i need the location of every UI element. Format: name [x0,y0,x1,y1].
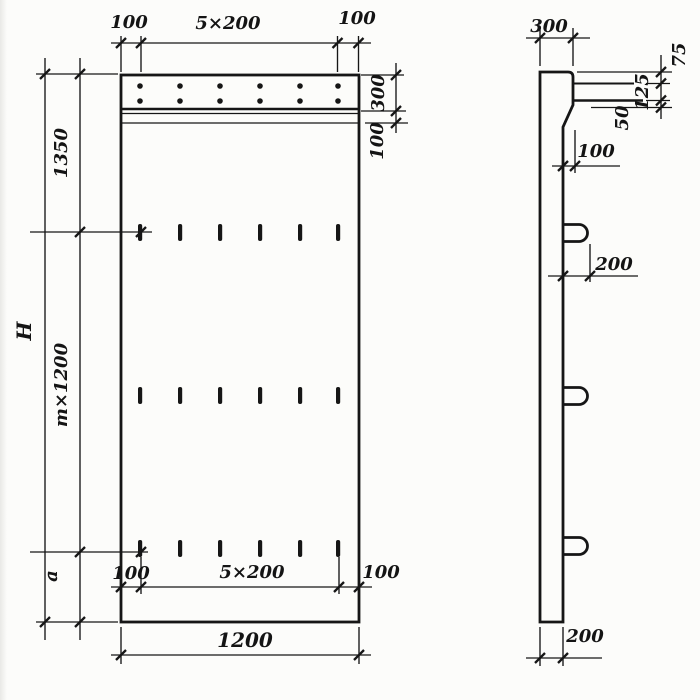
front-overall-width-dimension: 1200 [111,627,371,664]
side-top-dimension: 300 [526,16,590,66]
side-loop-depth-label: 200 [594,254,633,275]
side-top-thickness-label: 300 [530,16,568,37]
front-dim-a-label: a [41,570,62,582]
front-groove-height-label: 100 [367,122,388,160]
front-bottom-inner-dimension: 100 5×200 100 [111,557,400,594]
front-strip-height-label: 300 [368,74,389,112]
front-top-dim-right-label: 100 [338,8,376,29]
front-top-dim-middle-label: 5×200 [195,13,261,34]
panel-outline [121,75,359,622]
side-bottom-dimension: 200 [526,626,604,666]
front-right-dimension: 300 100 [361,63,408,160]
front-left-dimension: 1350 m×1200 a H [12,58,152,640]
front-bottom-dim-right-label: 100 [362,562,400,583]
front-bottom-dim-middle-label: 5×200 [219,562,285,583]
front-view: 100 5×200 100 300 100 [12,8,408,664]
front-dim-1350-label: 1350 [51,127,72,178]
side-profile-outline [540,72,573,622]
side-offset-label: 100 [577,141,615,162]
lifting-loops [563,225,588,555]
side-dim-75-label: 75 [669,42,690,67]
side-right-dimension: 75 125 50 [577,42,690,130]
side-bottom-thickness-label: 200 [565,626,604,647]
front-width-label: 1200 [217,628,273,652]
side-dim-50-label: 50 [612,105,633,131]
front-dim-m1200-label: m×1200 [51,342,72,427]
side-loop-dimension: 200 [548,244,638,282]
front-bottom-dim-left-label: 100 [112,563,150,584]
anchor-slots [138,224,340,557]
front-dim-H-label: H [12,320,36,341]
rebar-dots [137,83,341,104]
panel-drawing: 100 5×200 100 300 100 [0,0,700,700]
side-dim-125-label: 125 [632,73,653,111]
front-top-dim-left-label: 100 [110,12,148,33]
front-top-dimension: 100 5×200 100 [110,8,376,72]
side-view: 300 75 125 50 100 [526,16,690,666]
drawing-sheet: 100 5×200 100 300 100 [0,0,700,700]
